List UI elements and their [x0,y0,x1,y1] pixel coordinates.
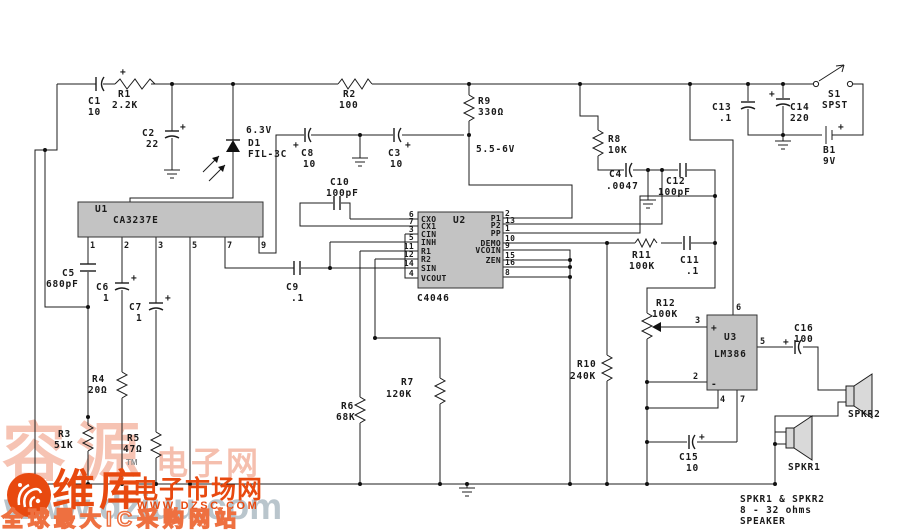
label-c13-ref: C13 [712,102,732,113]
u1-pin-5: 5 [192,241,198,251]
label-s1-val: SPST [822,100,848,111]
label-c7-ref: C7 [129,302,142,313]
label-c3-val: 10 [390,159,403,170]
label-r3-ref: R3 [58,429,71,440]
label-b1-val: 9V [823,156,836,167]
label-c9-ref: C9 [286,282,299,293]
label-c1-val: 10 [88,107,101,118]
u1-pin-1: 1 [90,241,96,251]
circuit-schematic-page: 容源 电子网 [0,0,900,531]
label-c3-ref: C3 [388,148,401,159]
cap-c1-plus: + [120,67,127,78]
label-r11-val: 100K [629,261,655,272]
label-c11-val: .1 [686,266,699,277]
label-c14-ref: C14 [790,102,810,113]
label-r9-val: 330Ω [478,107,504,118]
label-c2-ref: C2 [142,128,155,139]
u3-pinnum-4: 4 [720,395,726,405]
note-line2: 8 - 32 ohms [740,505,812,516]
label-s1-ref: S1 [828,89,841,100]
label-r8-val: 10K [608,145,628,156]
label-c8-val: 10 [303,159,316,170]
u2-pin-vcout: VCOUT [421,274,447,283]
note-line3: SPEAKER [740,516,786,527]
u2-pin-inh: INH [421,238,436,247]
label-c14-val: 220 [790,113,810,124]
schematic-canvas: C1 10 + R1 2.2K R2 100 C2 22 + D1 FIL-3C… [0,0,900,531]
u3-plus-input: + [711,323,718,334]
speaker-spkr1 [786,416,812,460]
u2-pin-r2: R2 [421,255,431,264]
cap-c15-plus: + [699,432,706,443]
label-r6-val: 68K [336,412,356,423]
u2-pinnum-1: 1 [505,224,510,233]
cap-c7-plus: + [165,293,172,304]
label-r10-ref: R10 [577,359,597,370]
ground-bus [459,488,475,496]
label-c6-val: 1 [103,293,110,304]
label-r1-val: 2.2K [112,100,138,111]
label-b1-ref: B1 [823,145,836,156]
u3-pinnum-6: 6 [736,303,742,313]
label-r2-ref: R2 [343,89,356,100]
cap-c3-plate2 [399,128,402,142]
u1-pin-9: 9 [261,241,267,251]
resistor-r11-symbol [635,239,657,247]
resistor-r6-symbol [355,397,365,423]
label-c4-val: .0047 [606,181,639,192]
ground-c4 [640,200,656,208]
label-c2-val: 22 [146,139,159,150]
cap-c3-plus: + [405,140,412,151]
resistor-r10-symbol [602,355,612,381]
label-r8-ref: R8 [608,134,621,145]
cap-c8-plate2 [309,128,312,142]
label-c6-ref: C6 [96,282,109,293]
cap-c2-plate2 [165,136,179,138]
watermark-slogan: 全球最大IC采购网站 [2,503,241,531]
watermark-tm: TM [126,458,138,467]
label-c12-ref: C12 [666,176,686,187]
u2-pinnum-14: 14 [404,259,414,268]
switch-s1 [813,65,852,87]
u2-pinnum-8: 8 [505,268,510,277]
label-c16-val: 100 [794,334,814,345]
u2-pinnum-12: 12 [404,250,414,259]
cap-c14-plate2 [776,104,790,106]
label-r12-ref: R12 [656,298,676,309]
label-r2-val: 100 [339,100,359,111]
ground-c2 [164,170,180,178]
label-r4-val: 20Ω [88,385,108,396]
label-c10-val: 100pF [326,188,359,199]
battery-b1-plus: + [838,122,845,133]
label-c5-ref: C5 [62,268,75,279]
label-r1-ref: R1 [118,89,131,100]
photodiode-d1 [203,140,240,181]
resistor-r7-symbol [435,378,445,404]
u3-pinnum-7: 7 [740,395,746,405]
label-r5-val: 47Ω [123,444,143,455]
label-d1-ref: D1 [248,138,261,149]
resistor-r4-symbol [117,372,127,398]
label-r4-ref: R4 [92,374,105,385]
resistor-r3-symbol [83,425,93,451]
cap-c13-plate2 [741,107,755,109]
ground-c14 [775,141,791,149]
u2-pinnum-4: 4 [409,269,414,278]
potentiometer-r12-symbol [642,313,652,339]
label-c10-ref: C10 [330,177,350,188]
label-r5-ref: R5 [127,433,140,444]
cap-c15-plate2 [693,435,696,449]
label-c13-val: .1 [719,113,732,124]
label-c12-val: 100pF [658,187,691,198]
u3-pinnum-3: 3 [695,316,701,326]
label-c9-val: .1 [291,293,304,304]
label-r3-val: 51K [54,440,74,451]
cap-c8-plus: + [293,140,300,151]
resistor-r2-symbol [338,79,372,89]
u2-pinnum-5: 5 [409,233,414,242]
u2-pin-pp: PP [491,229,501,238]
label-c15-val: 10 [686,463,699,474]
label-c7-val: 1 [136,313,143,324]
label-net-63v: 6.3V [246,125,272,136]
label-c16-ref: C16 [794,323,814,334]
label-net-55v: 5.5-6V [476,144,515,155]
u2-pin-vcoin: VCOIN [475,246,501,255]
label-c15-ref: C15 [679,452,699,463]
u1-pin-3: 3 [158,241,164,251]
ground-63v [352,158,368,166]
label-r12-val: 100K [652,309,678,320]
cap-c7-plate2 [149,308,163,310]
battery-b1 [826,126,836,144]
note-line1: SPKR1 & SPKR2 [740,494,825,505]
resistor-r1-symbol [115,79,155,89]
cap-c2-plus: + [180,122,187,133]
label-r7-ref: R7 [401,377,414,388]
label-r10-val: 240K [570,371,596,382]
cap-c6-plus: + [131,273,138,284]
u2-pin-zen: ZEN [486,256,501,265]
cap-c16-plus: + [783,337,790,348]
label-c8-ref: C8 [301,148,314,159]
cap-c4-plate2 [630,163,633,177]
label-r7-val: 120K [386,389,412,400]
u2-pinnum-9: 9 [505,241,510,250]
cap-c6-plate2 [115,288,129,290]
label-u3-part: LM386 [714,349,747,360]
label-spkr1: SPKR1 [788,462,821,473]
u2-pinnum-16: 16 [505,258,515,267]
u1-pin-2: 2 [124,241,130,251]
u3-pinnum-5: 5 [760,337,766,347]
cap-c14-plus: + [769,89,776,100]
label-c4-ref: C4 [609,169,622,180]
label-c11-ref: C11 [680,255,700,266]
label-r11-ref: R11 [632,250,652,261]
label-u3-ref: U3 [724,332,737,343]
u1-pin-7: 7 [227,241,233,251]
resistor-r5-symbol [151,432,161,458]
label-u2-part: C4046 [417,293,450,304]
u2-pin-sin: SIN [421,264,436,273]
potentiometer-r12-wiper-arrow [652,322,661,332]
label-u2-ref: U2 [453,215,466,226]
label-spkr2: SPKR2 [848,409,881,420]
u3-pinnum-2: 2 [693,372,699,382]
label-r6-ref: R6 [341,401,354,412]
resistor-r9-symbol [464,95,474,121]
label-c5-val: 680pF [46,279,79,290]
label-r9-ref: R9 [478,96,491,107]
resistor-r8-symbol [593,130,603,156]
label-u1-ref: U1 [95,204,108,215]
label-c1-ref: C1 [88,96,101,107]
u3-minus-input: - [711,379,718,390]
label-u1-part: CA3237E [113,215,159,226]
label-d1-val: FIL-3C [248,149,287,160]
